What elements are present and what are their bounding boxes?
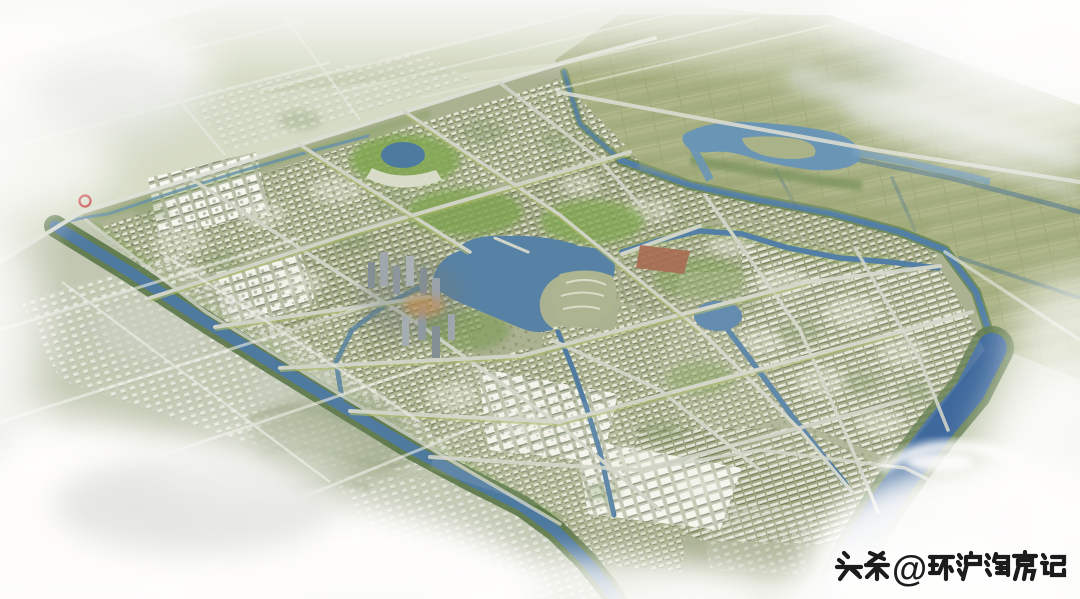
svg-text:@: @ xyxy=(892,548,927,589)
